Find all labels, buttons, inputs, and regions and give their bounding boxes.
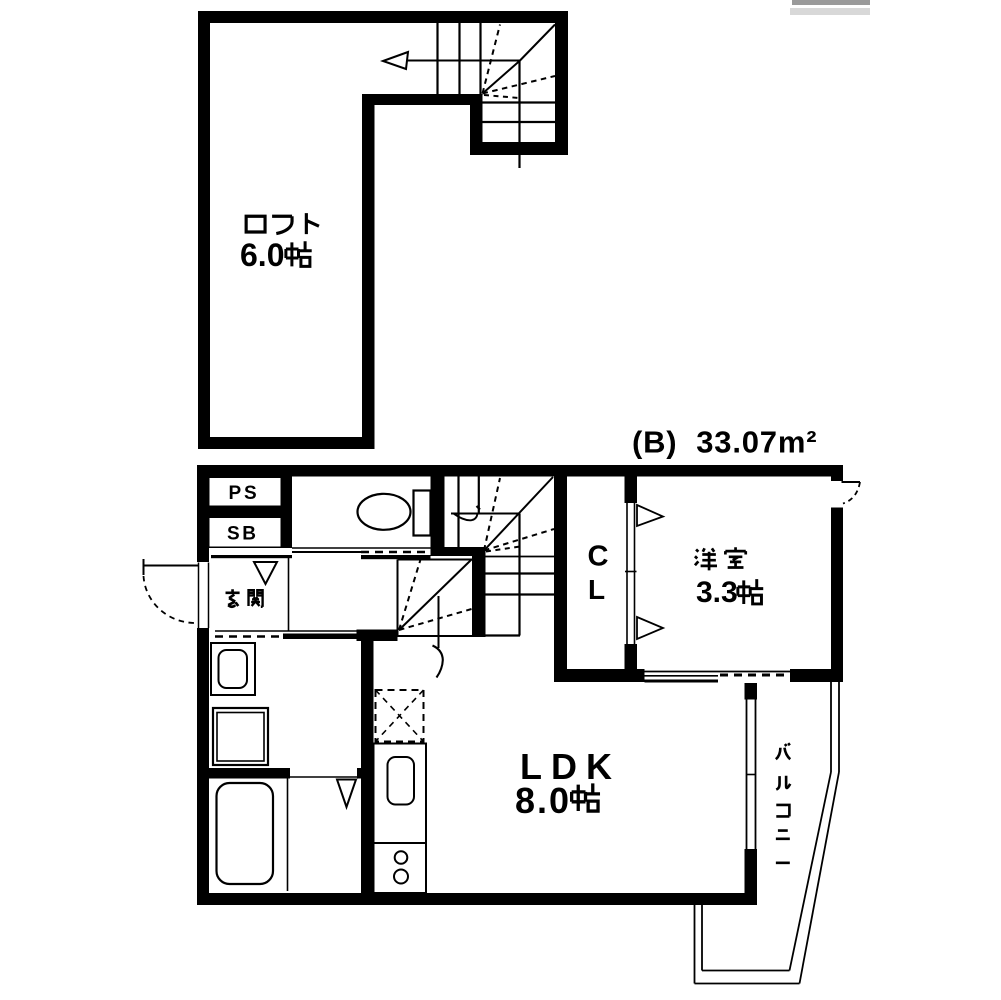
svg-text:PS: PS	[229, 483, 260, 504]
svg-text:L: L	[588, 574, 605, 605]
svg-text:C: C	[588, 541, 609, 573]
svg-text:(B) 33.07m²: (B) 33.07m²	[632, 425, 817, 460]
svg-text:8.0: 8.0	[515, 780, 571, 821]
svg-text:6.0: 6.0	[240, 237, 284, 273]
svg-text:SB: SB	[227, 524, 259, 545]
svg-text:3.3: 3.3	[696, 576, 738, 609]
